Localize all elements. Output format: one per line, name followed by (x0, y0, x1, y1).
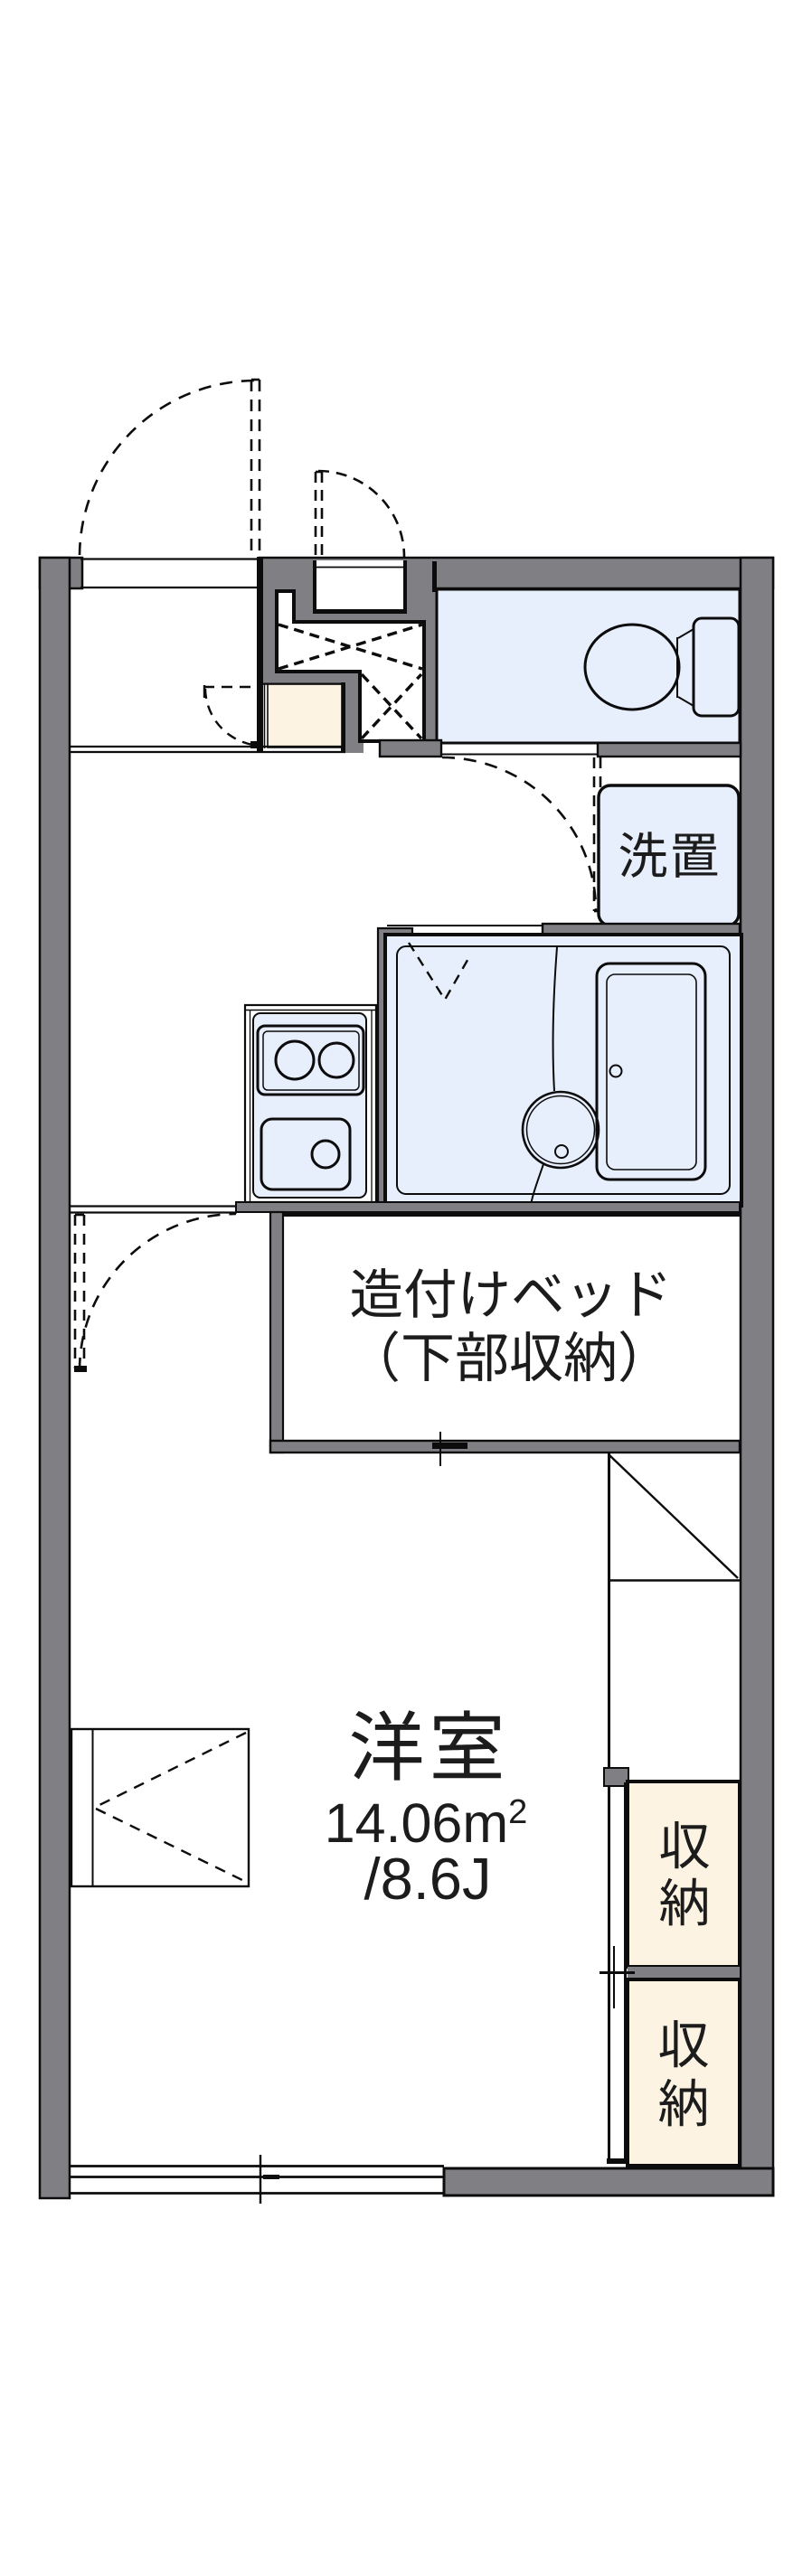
svg-text:/8.6J: /8.6J (364, 1846, 492, 1912)
svg-text:14.06m2: 14.06m2 (325, 1792, 528, 1854)
